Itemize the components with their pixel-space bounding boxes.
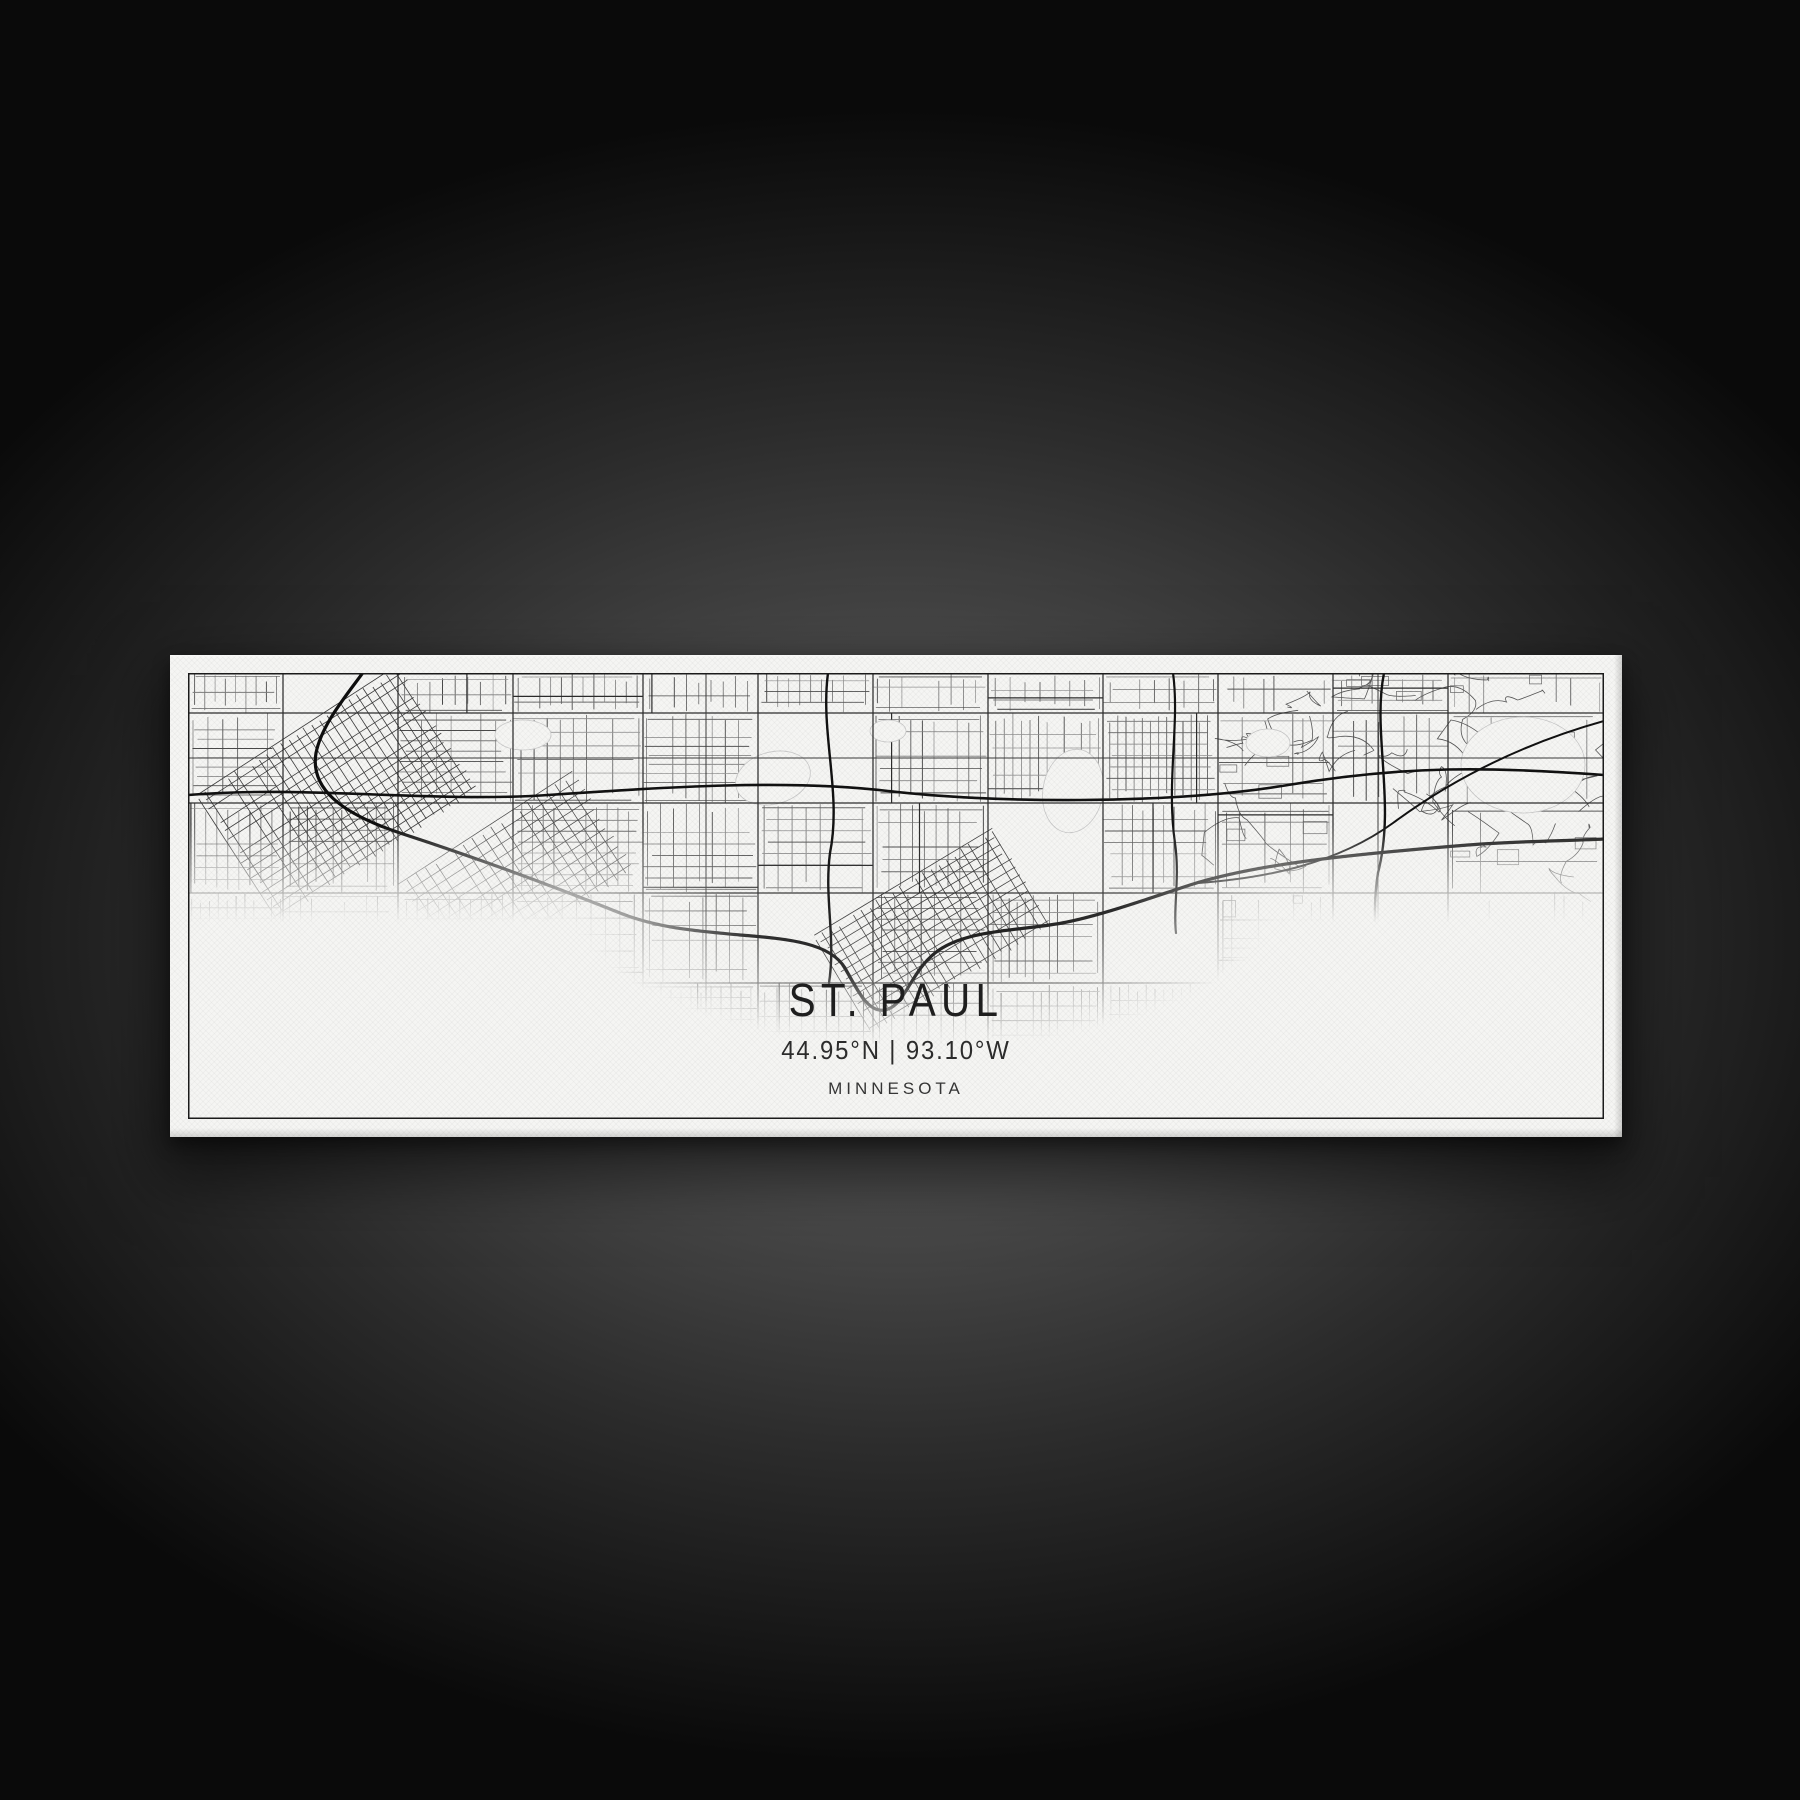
canvas-top-edge bbox=[170, 655, 1622, 658]
state-label: MINNESOTA bbox=[170, 1079, 1622, 1099]
coordinates-label: 44.95°N | 93.10°W bbox=[228, 1035, 1564, 1066]
photo-backdrop: ST. PAUL 44.95°N | 93.10°W MINNESOTA bbox=[0, 0, 1800, 1800]
canvas-print: ST. PAUL 44.95°N | 93.10°W MINNESOTA bbox=[170, 655, 1622, 1137]
canvas-right-edge bbox=[1614, 655, 1622, 1137]
city-title: ST. PAUL bbox=[257, 973, 1535, 1027]
canvas-bottom-edge bbox=[170, 1128, 1622, 1137]
